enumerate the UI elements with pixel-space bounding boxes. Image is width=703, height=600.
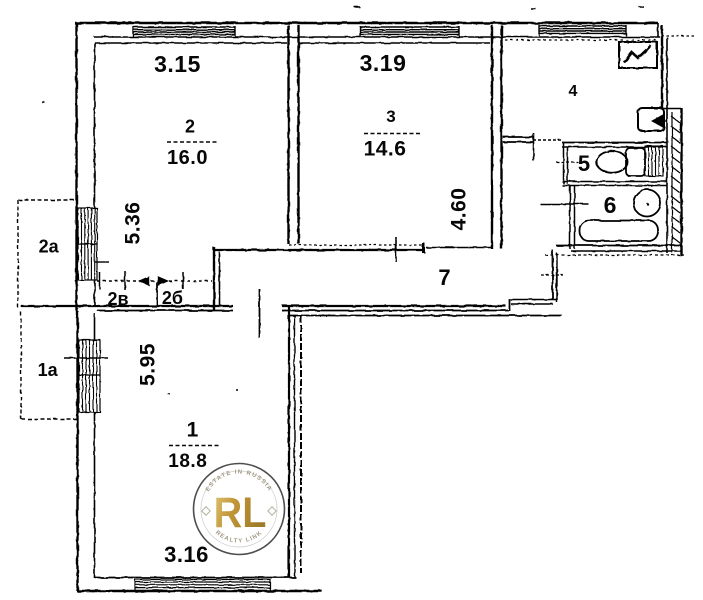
svg-text:4: 4 [569,83,578,100]
svg-text:2б: 2б [162,288,183,308]
svg-text:6: 6 [604,192,617,218]
svg-text:5: 5 [578,151,590,176]
svg-text:1а: 1а [38,360,59,380]
svg-text:3.16: 3.16 [164,542,209,567]
svg-text:3.15: 3.15 [154,51,201,77]
svg-text:3: 3 [386,107,395,126]
svg-text:5.95: 5.95 [137,343,160,386]
svg-text:7: 7 [438,265,450,290]
svg-text:2в: 2в [107,289,128,309]
svg-text:2: 2 [185,117,195,137]
svg-text:18.8: 18.8 [168,451,207,472]
svg-text:RL: RL [214,488,267,536]
svg-text:1: 1 [187,419,199,442]
svg-text:2а: 2а [39,237,60,257]
svg-text:5.36: 5.36 [122,202,145,245]
svg-text:3.19: 3.19 [360,50,407,76]
svg-text:16.0: 16.0 [167,147,208,169]
svg-text:14.6: 14.6 [364,138,407,161]
svg-text:4.60: 4.60 [448,188,471,231]
